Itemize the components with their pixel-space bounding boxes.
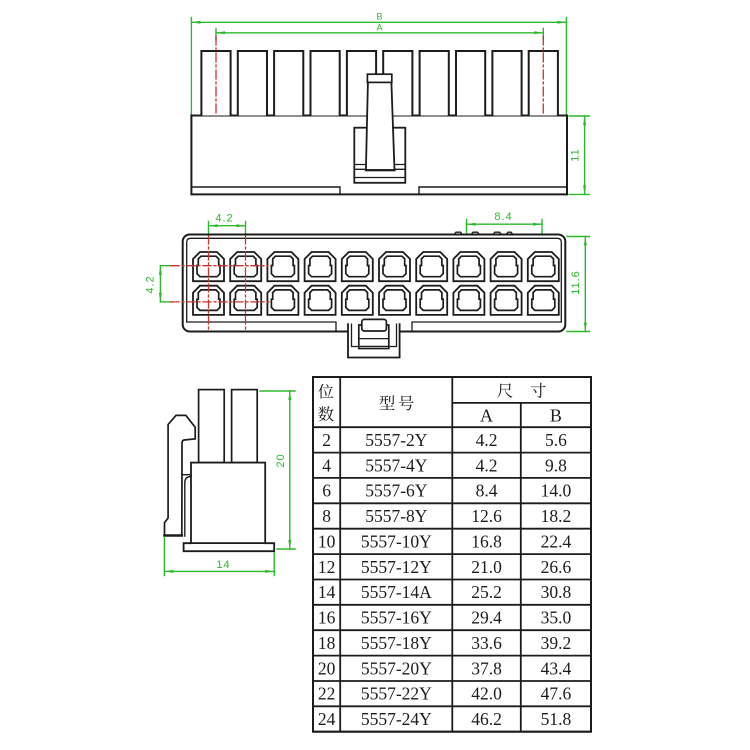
svg-text:18: 18 bbox=[318, 633, 336, 653]
svg-text:5557-18Y: 5557-18Y bbox=[361, 633, 432, 653]
svg-text:47.6: 47.6 bbox=[541, 684, 572, 704]
svg-text:4.2: 4.2 bbox=[215, 213, 233, 225]
svg-text:20: 20 bbox=[318, 658, 336, 678]
svg-text:51.8: 51.8 bbox=[541, 709, 572, 729]
svg-text:9.8: 9.8 bbox=[545, 455, 567, 475]
svg-text:5557-2Y: 5557-2Y bbox=[365, 430, 428, 450]
svg-text:8.4: 8.4 bbox=[494, 211, 512, 223]
svg-text:5557-6Y: 5557-6Y bbox=[365, 481, 428, 501]
svg-text:5557-14A: 5557-14A bbox=[361, 582, 432, 602]
svg-text:4.2: 4.2 bbox=[476, 430, 498, 450]
svg-text:25.2: 25.2 bbox=[471, 582, 502, 602]
svg-text:4.2: 4.2 bbox=[476, 455, 498, 475]
svg-text:5557-4Y: 5557-4Y bbox=[365, 455, 428, 475]
svg-text:B: B bbox=[376, 12, 382, 22]
svg-text:4.2: 4.2 bbox=[145, 275, 157, 293]
svg-text:14: 14 bbox=[216, 559, 230, 571]
svg-text:5557-16Y: 5557-16Y bbox=[361, 608, 432, 628]
svg-text:5557-10Y: 5557-10Y bbox=[361, 531, 432, 551]
svg-text:A: A bbox=[376, 23, 382, 33]
svg-text:33.6: 33.6 bbox=[471, 633, 502, 653]
svg-text:12: 12 bbox=[318, 557, 336, 577]
svg-text:5557-12Y: 5557-12Y bbox=[361, 557, 432, 577]
svg-text:2: 2 bbox=[322, 430, 331, 450]
svg-text:22: 22 bbox=[318, 684, 336, 704]
svg-text:24: 24 bbox=[318, 709, 336, 729]
svg-text:5.6: 5.6 bbox=[545, 430, 567, 450]
svg-text:10: 10 bbox=[318, 531, 336, 551]
svg-text:26.6: 26.6 bbox=[541, 557, 572, 577]
svg-text:8: 8 bbox=[322, 506, 331, 526]
svg-text:21.0: 21.0 bbox=[471, 557, 502, 577]
svg-text:A: A bbox=[480, 406, 493, 426]
svg-text:5557-8Y: 5557-8Y bbox=[365, 506, 428, 526]
svg-text:14: 14 bbox=[318, 582, 336, 602]
svg-text:22.4: 22.4 bbox=[541, 531, 572, 551]
svg-text:30.8: 30.8 bbox=[541, 582, 572, 602]
svg-text:12.6: 12.6 bbox=[471, 506, 502, 526]
svg-text:11: 11 bbox=[570, 148, 582, 161]
svg-text:5557-24Y: 5557-24Y bbox=[361, 709, 432, 729]
svg-text:11.6: 11.6 bbox=[570, 270, 582, 295]
svg-text:46.2: 46.2 bbox=[471, 709, 502, 729]
svg-text:4: 4 bbox=[322, 455, 331, 475]
svg-text:42.0: 42.0 bbox=[471, 684, 502, 704]
svg-text:18.2: 18.2 bbox=[541, 506, 572, 526]
svg-text:20: 20 bbox=[275, 453, 287, 467]
svg-text:8.4: 8.4 bbox=[476, 481, 498, 501]
svg-text:16.8: 16.8 bbox=[471, 531, 502, 551]
svg-text:5557-22Y: 5557-22Y bbox=[361, 684, 432, 704]
svg-text:16: 16 bbox=[318, 608, 336, 628]
svg-text:14.0: 14.0 bbox=[541, 481, 572, 501]
svg-text:6: 6 bbox=[322, 481, 331, 501]
svg-text:37.8: 37.8 bbox=[471, 658, 502, 678]
svg-text:5557-20Y: 5557-20Y bbox=[361, 658, 432, 678]
svg-text:B: B bbox=[550, 406, 562, 426]
svg-text:39.2: 39.2 bbox=[541, 633, 572, 653]
svg-text:29.4: 29.4 bbox=[471, 608, 502, 628]
svg-text:35.0: 35.0 bbox=[541, 608, 572, 628]
svg-text:43.4: 43.4 bbox=[541, 658, 572, 678]
